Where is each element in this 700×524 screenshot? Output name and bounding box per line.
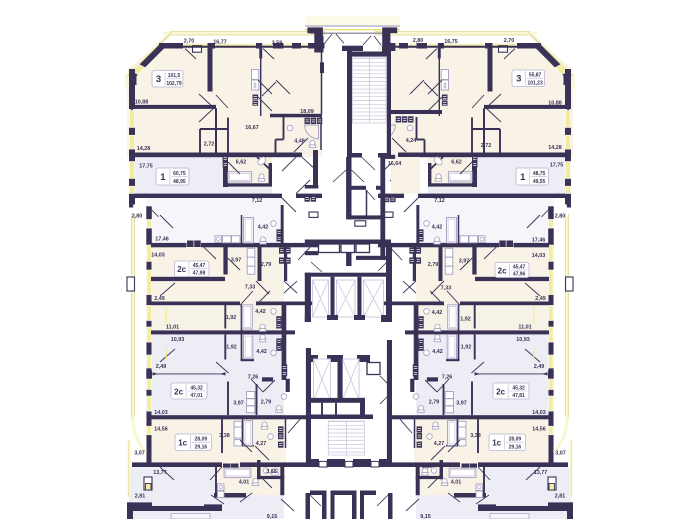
svg-text:55,87: 55,87 xyxy=(529,73,542,79)
svg-text:45,32: 45,32 xyxy=(190,385,203,391)
svg-text:2,80: 2,80 xyxy=(413,38,424,44)
svg-text:45,47: 45,47 xyxy=(513,264,526,270)
svg-text:4,24: 4,24 xyxy=(406,138,417,144)
svg-text:2,80: 2,80 xyxy=(555,214,566,220)
svg-text:7,12: 7,12 xyxy=(434,198,445,204)
svg-text:13,77: 13,77 xyxy=(153,470,167,476)
svg-text:4,42: 4,42 xyxy=(432,225,443,231)
svg-text:2,49: 2,49 xyxy=(154,296,165,302)
svg-text:45,32: 45,32 xyxy=(512,385,525,391)
svg-text:3,68: 3,68 xyxy=(266,469,277,475)
svg-text:3,97: 3,97 xyxy=(459,259,470,265)
svg-text:29,16: 29,16 xyxy=(195,444,208,450)
svg-text:2,49: 2,49 xyxy=(534,364,545,370)
svg-text:16,75: 16,75 xyxy=(444,39,458,45)
svg-text:1: 1 xyxy=(160,172,166,183)
svg-text:1,92: 1,92 xyxy=(226,345,237,351)
svg-text:14,03: 14,03 xyxy=(532,253,546,259)
svg-text:7,26: 7,26 xyxy=(442,375,453,381)
svg-text:3,38: 3,38 xyxy=(470,433,481,439)
svg-text:14,03: 14,03 xyxy=(532,410,546,416)
svg-text:5,89: 5,89 xyxy=(422,464,433,470)
svg-text:2,70: 2,70 xyxy=(504,38,515,44)
svg-text:9,15: 9,15 xyxy=(267,514,278,519)
svg-text:7,33: 7,33 xyxy=(441,286,452,292)
svg-text:9,15: 9,15 xyxy=(420,514,431,519)
svg-text:47,81: 47,81 xyxy=(512,393,525,399)
svg-text:4,42: 4,42 xyxy=(432,349,443,355)
svg-text:3,38: 3,38 xyxy=(219,433,230,439)
svg-text:4,42: 4,42 xyxy=(256,349,267,355)
svg-text:1,92: 1,92 xyxy=(461,345,472,351)
svg-text:1: 1 xyxy=(520,172,526,183)
svg-text:2,49: 2,49 xyxy=(535,296,546,302)
svg-text:4,42: 4,42 xyxy=(432,310,443,316)
svg-text:2,79: 2,79 xyxy=(428,262,439,268)
svg-text:17,75: 17,75 xyxy=(550,163,564,169)
svg-text:10,93: 10,93 xyxy=(171,337,185,343)
svg-text:101,5: 101,5 xyxy=(168,73,181,79)
svg-text:3,97: 3,97 xyxy=(231,258,242,264)
svg-text:1с: 1с xyxy=(492,439,501,448)
svg-text:2,79: 2,79 xyxy=(261,262,272,268)
svg-text:7,12: 7,12 xyxy=(252,198,263,204)
svg-text:3,97: 3,97 xyxy=(233,401,244,407)
svg-text:2с: 2с xyxy=(498,266,507,275)
svg-text:45,47: 45,47 xyxy=(193,263,206,269)
svg-text:6,62: 6,62 xyxy=(451,160,462,166)
svg-text:16,67: 16,67 xyxy=(245,125,259,131)
svg-text:2,49: 2,49 xyxy=(156,364,167,370)
svg-text:1с: 1с xyxy=(178,439,187,448)
svg-text:10,93: 10,93 xyxy=(516,337,530,343)
svg-text:2,72: 2,72 xyxy=(481,143,492,149)
svg-text:14,56: 14,56 xyxy=(154,427,168,433)
svg-text:2,72: 2,72 xyxy=(204,142,215,148)
svg-text:49,55: 49,55 xyxy=(533,179,546,185)
svg-text:48,95: 48,95 xyxy=(173,179,186,185)
svg-text:4,48: 4,48 xyxy=(294,139,305,145)
svg-text:14,28: 14,28 xyxy=(137,146,151,152)
svg-text:102,79: 102,79 xyxy=(166,81,182,87)
svg-text:14,28: 14,28 xyxy=(548,145,562,151)
svg-text:28,09: 28,09 xyxy=(509,437,522,443)
svg-text:4,27: 4,27 xyxy=(434,441,445,447)
svg-text:14,03: 14,03 xyxy=(151,253,165,259)
svg-text:16,64: 16,64 xyxy=(388,161,402,167)
svg-text:14,56: 14,56 xyxy=(532,427,546,433)
svg-text:2,79: 2,79 xyxy=(429,400,440,406)
svg-text:1,92: 1,92 xyxy=(460,317,471,323)
svg-text:18,09: 18,09 xyxy=(300,109,314,115)
svg-text:13,77: 13,77 xyxy=(534,470,548,476)
svg-text:1,92: 1,92 xyxy=(226,315,237,321)
svg-text:4,42: 4,42 xyxy=(258,225,269,231)
svg-text:4,27: 4,27 xyxy=(256,441,267,447)
svg-text:28,09: 28,09 xyxy=(195,437,208,443)
svg-text:11,01: 11,01 xyxy=(518,325,531,331)
svg-text:3: 3 xyxy=(156,74,161,85)
svg-text:17,75: 17,75 xyxy=(139,164,153,170)
svg-text:10,88: 10,88 xyxy=(135,100,149,106)
svg-text:4,01: 4,01 xyxy=(451,480,462,486)
svg-text:47,01: 47,01 xyxy=(190,393,203,399)
svg-text:3,07: 3,07 xyxy=(555,451,566,457)
svg-text:7,26: 7,26 xyxy=(248,375,259,381)
svg-text:2,70: 2,70 xyxy=(184,39,195,45)
svg-text:16,77: 16,77 xyxy=(213,40,227,46)
svg-text:6,62: 6,62 xyxy=(236,160,247,166)
svg-text:2с: 2с xyxy=(177,265,186,274)
svg-text:47,98: 47,98 xyxy=(193,270,206,276)
svg-text:4,42: 4,42 xyxy=(255,309,266,315)
svg-text:7,33: 7,33 xyxy=(245,285,256,291)
svg-text:14,03: 14,03 xyxy=(154,410,168,416)
svg-text:29,16: 29,16 xyxy=(509,444,522,450)
svg-text:2с: 2с xyxy=(174,387,183,396)
svg-text:48,75: 48,75 xyxy=(533,171,546,177)
svg-text:47,96: 47,96 xyxy=(513,271,526,277)
svg-text:17,46: 17,46 xyxy=(155,237,169,243)
svg-text:3,59: 3,59 xyxy=(272,41,283,47)
svg-text:2,80: 2,80 xyxy=(132,214,143,220)
svg-text:3: 3 xyxy=(516,74,521,85)
svg-text:14,50: 14,50 xyxy=(395,110,409,116)
svg-text:10,88: 10,88 xyxy=(548,101,562,107)
svg-text:101,23: 101,23 xyxy=(527,80,543,86)
svg-text:17,46: 17,46 xyxy=(532,238,546,244)
svg-text:2,81: 2,81 xyxy=(555,494,566,500)
svg-text:2,79: 2,79 xyxy=(261,400,272,406)
svg-text:11,01: 11,01 xyxy=(166,325,179,331)
svg-text:2,81: 2,81 xyxy=(135,494,146,500)
svg-text:4,01: 4,01 xyxy=(239,480,250,486)
svg-text:2с: 2с xyxy=(496,387,505,396)
svg-text:3,07: 3,07 xyxy=(134,451,145,457)
svg-text:60,75: 60,75 xyxy=(173,171,186,177)
svg-text:3,97: 3,97 xyxy=(456,401,467,407)
